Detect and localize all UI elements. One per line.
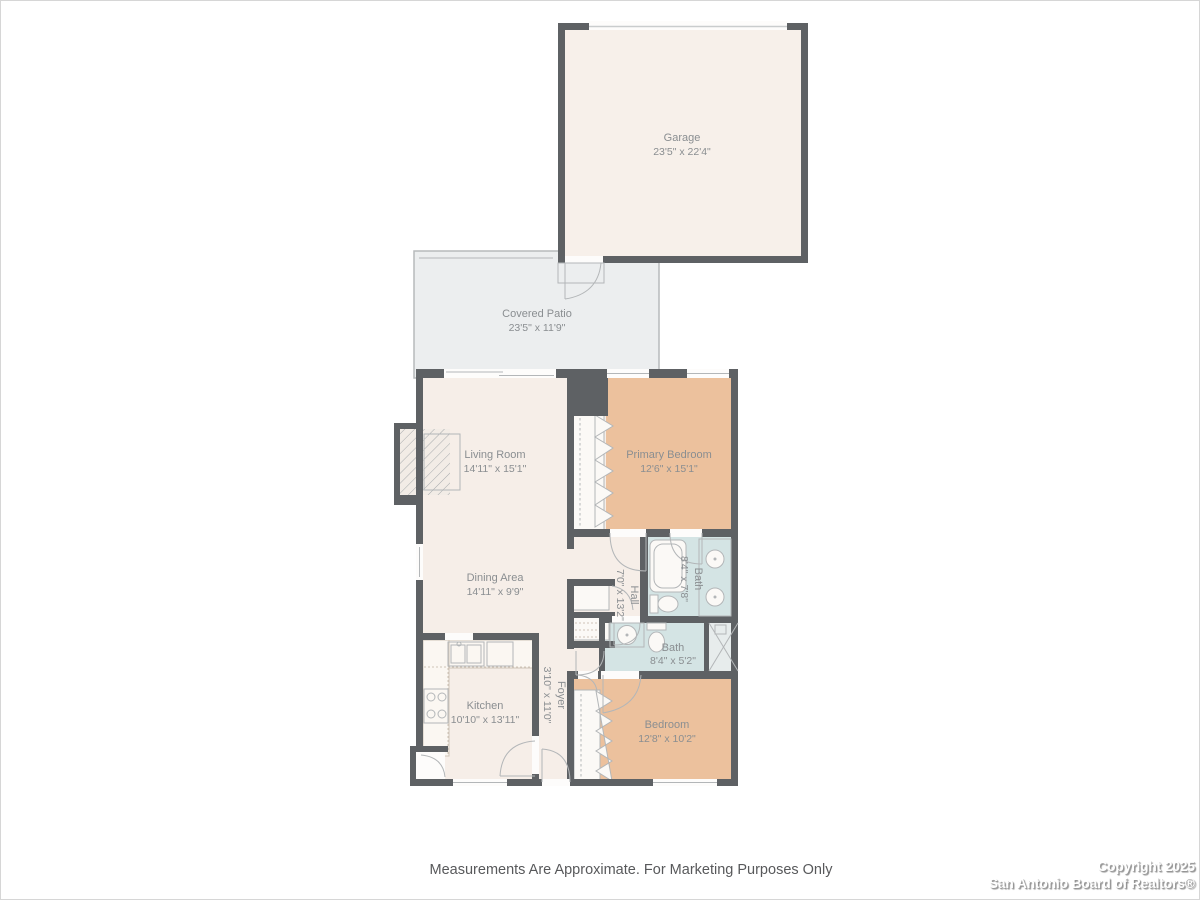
floor-plan-page: Garage 23'5" x 22'4" Covered Patio 23'5"… xyxy=(0,0,1200,900)
svg-text:Primary Bedroom: Primary Bedroom xyxy=(626,449,712,461)
svg-text:Bath: Bath xyxy=(662,642,685,654)
window xyxy=(687,369,729,378)
svg-text:12'8" x 10'2": 12'8" x 10'2" xyxy=(638,733,696,745)
toilet xyxy=(650,595,678,613)
copyright-watermark: Copyright 2025 San Antonio Board of Real… xyxy=(989,858,1195,892)
svg-text:Covered Patio: Covered Patio xyxy=(502,308,572,320)
svg-text:Living Room: Living Room xyxy=(464,449,525,461)
svg-text:23'5" x 11'9": 23'5" x 11'9" xyxy=(509,322,566,334)
svg-text:10'10" x 13'11": 10'10" x 13'11" xyxy=(451,714,520,726)
svg-text:14'11" x 9'9": 14'11" x 9'9" xyxy=(467,586,524,598)
window xyxy=(416,544,423,580)
sliding-door xyxy=(444,369,556,378)
svg-text:12'6" x 15'1": 12'6" x 15'1" xyxy=(640,463,698,475)
window xyxy=(653,779,717,786)
svg-text:3'10" x 11'0": 3'10" x 11'0" xyxy=(541,667,553,724)
svg-text:8'4" x 5'2": 8'4" x 5'2" xyxy=(650,655,696,667)
svg-text:Garage: Garage xyxy=(664,132,701,144)
svg-text:Kitchen: Kitchen xyxy=(467,700,504,712)
window xyxy=(607,369,649,378)
svg-text:8'4" x 7'8": 8'4" x 7'8" xyxy=(678,556,690,602)
garage-room xyxy=(558,21,808,299)
floor-plan-drawing: Garage 23'5" x 22'4" Covered Patio 23'5"… xyxy=(1,1,1200,900)
window xyxy=(453,779,507,786)
garage-door xyxy=(589,21,787,30)
linen-closet xyxy=(573,584,609,610)
svg-text:Foyer: Foyer xyxy=(555,681,567,709)
copyright-line1: Copyright 2025 xyxy=(989,858,1195,875)
svg-text:23'5" x 22'4": 23'5" x 22'4" xyxy=(653,146,711,158)
svg-text:Dining Area: Dining Area xyxy=(467,572,525,584)
svg-text:Bath: Bath xyxy=(692,568,704,591)
svg-text:14'11" x 15'1": 14'11" x 15'1" xyxy=(464,463,527,475)
copyright-line2: San Antonio Board of Realtors® xyxy=(989,875,1195,892)
svg-text:Hall: Hall xyxy=(628,586,640,605)
svg-text:Bedroom: Bedroom xyxy=(645,719,690,731)
svg-text:7'0" x 13'2": 7'0" x 13'2" xyxy=(614,569,626,621)
disclaimer-text: Measurements Are Approximate. For Market… xyxy=(430,862,833,878)
